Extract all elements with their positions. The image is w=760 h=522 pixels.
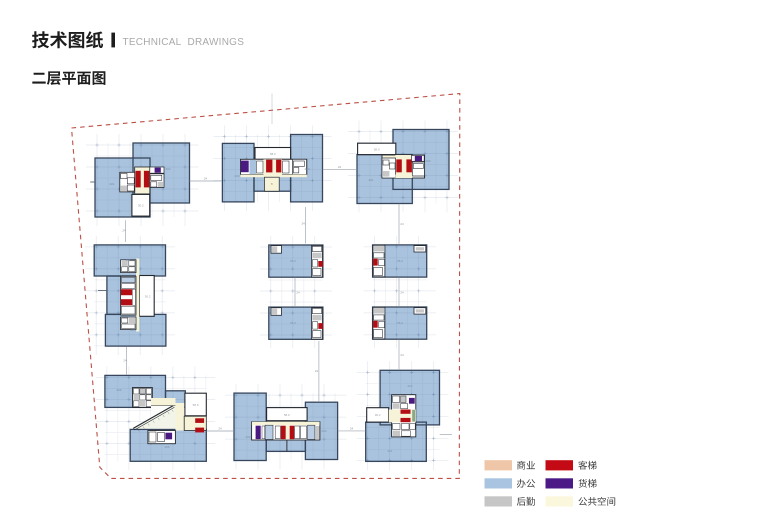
svg-text:58.0: 58.0: [270, 152, 276, 156]
svg-text:206: 206: [116, 388, 121, 392]
svg-text:24: 24: [218, 427, 222, 431]
svg-text:24: 24: [400, 353, 404, 357]
svg-text:24: 24: [338, 165, 342, 169]
svg-text:203: 203: [304, 167, 309, 171]
svg-text:24: 24: [123, 359, 127, 363]
svg-text:30.2: 30.2: [138, 204, 144, 208]
svg-text:201: 201: [387, 449, 392, 453]
svg-text:30.2: 30.2: [145, 295, 151, 299]
svg-text:24: 24: [122, 229, 126, 233]
svg-text:203: 203: [245, 435, 250, 439]
svg-text:24: 24: [400, 222, 404, 226]
svg-text:30.2: 30.2: [375, 413, 381, 417]
svg-text:24: 24: [204, 177, 208, 181]
svg-text:202: 202: [425, 159, 430, 163]
svg-text:206: 206: [164, 445, 169, 449]
svg-text:58.0: 58.0: [284, 413, 290, 417]
svg-text:58.0: 58.0: [374, 147, 380, 151]
svg-text:65.2: 65.2: [397, 321, 403, 325]
svg-text:24: 24: [400, 291, 404, 295]
svg-text:201: 201: [368, 178, 373, 182]
svg-text:65.2: 65.2: [290, 259, 296, 263]
svg-text:203: 203: [234, 174, 239, 178]
svg-text:202: 202: [407, 384, 412, 388]
svg-text:65.2: 65.2: [397, 259, 403, 263]
svg-text:24: 24: [302, 222, 306, 226]
svg-text:205: 205: [125, 258, 130, 262]
svg-text:65.2: 65.2: [290, 321, 296, 325]
svg-text:24: 24: [296, 291, 300, 295]
svg-text:205: 205: [130, 328, 135, 332]
svg-text:24: 24: [315, 369, 319, 373]
svg-text:203: 203: [321, 429, 326, 433]
svg-text:202: 202: [165, 167, 170, 171]
svg-text:201: 201: [109, 182, 114, 186]
svg-text:TECHNICAL DRAWINGS: TECHNICAL DRAWINGS: [123, 37, 245, 48]
svg-text:58.0: 58.0: [193, 403, 199, 407]
svg-text:24: 24: [350, 427, 354, 431]
